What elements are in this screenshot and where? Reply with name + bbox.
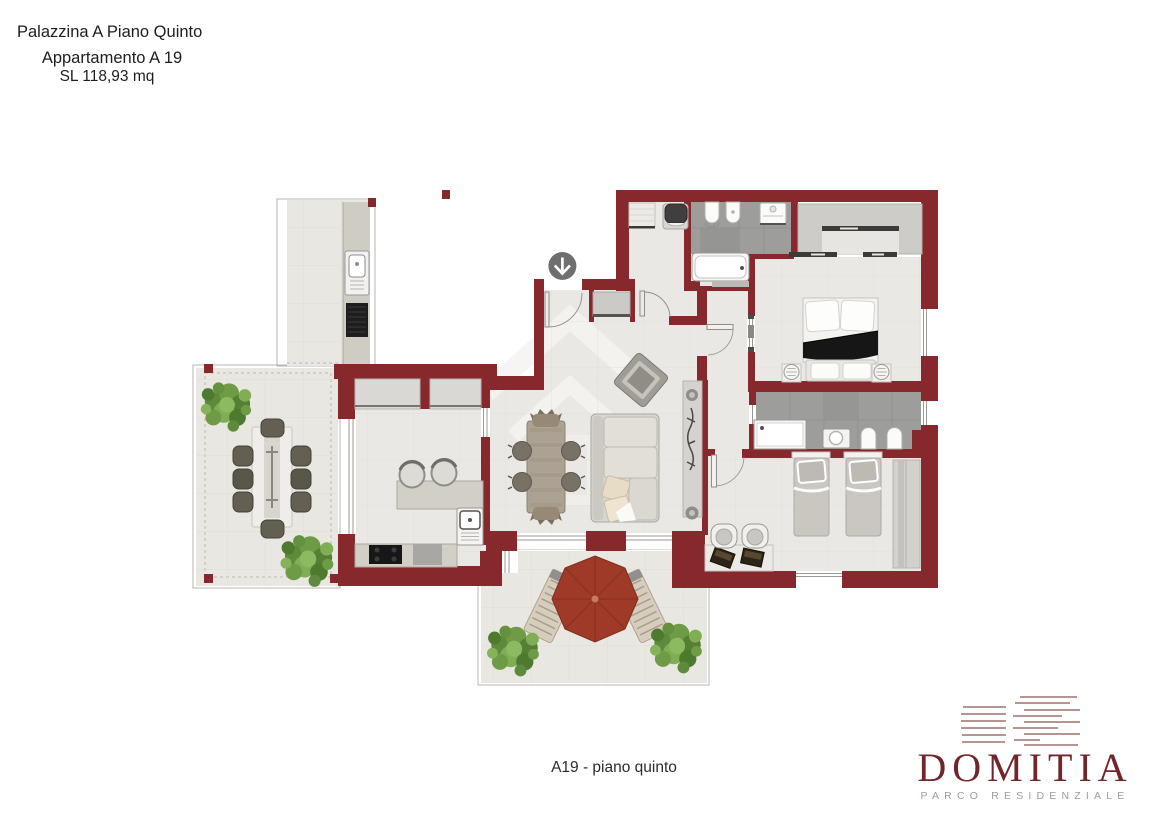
svg-text:PARCO RESIDENZIALE: PARCO RESIDENZIALE [921,790,1130,802]
svg-text:DOMITIA: DOMITIA [917,745,1132,790]
svg-text:Appartamento A 19: Appartamento A 19 [42,49,182,67]
svg-text:Palazzina A Piano Quinto: Palazzina A Piano Quinto [17,23,202,41]
svg-text:A19 - piano quinto: A19 - piano quinto [551,759,677,776]
svg-text:SL 118,93 mq: SL 118,93 mq [60,68,155,85]
